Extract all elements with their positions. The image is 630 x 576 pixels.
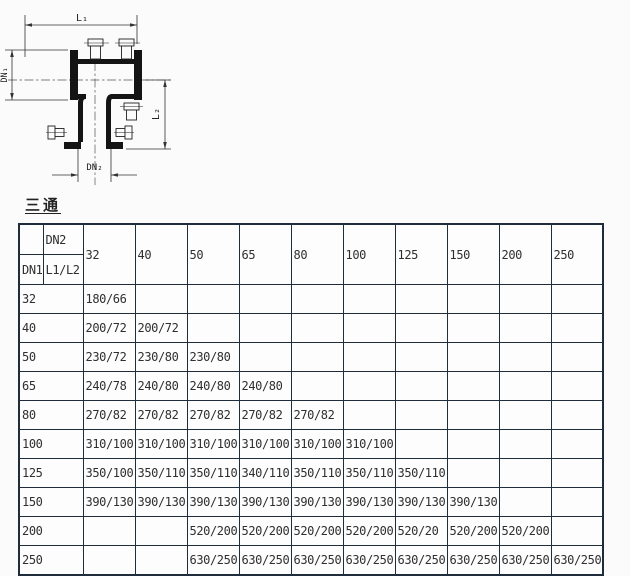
corner-empty-cell bbox=[19, 224, 43, 255]
row-header-dn1: 250 bbox=[19, 546, 83, 576]
table-cell bbox=[239, 314, 291, 343]
table-cell: 390/130 bbox=[83, 488, 135, 517]
row-header-dn1: 150 bbox=[19, 488, 83, 517]
dimension-label-dn1: DN₁ bbox=[0, 67, 10, 82]
column-header-dn2-200: 200 bbox=[499, 224, 551, 285]
table-cell bbox=[343, 314, 395, 343]
l2-arrow-bottom bbox=[163, 142, 167, 149]
right-flange bbox=[134, 50, 142, 100]
table-cell bbox=[291, 372, 343, 401]
table-cell bbox=[499, 285, 551, 314]
branch-right-wall bbox=[109, 97, 113, 143]
table-row-dn1-125: 125350/100350/110350/110340/110350/11035… bbox=[19, 459, 603, 488]
table-cell bbox=[343, 285, 395, 314]
table-cell bbox=[447, 430, 499, 459]
column-header-dn2-40: 40 bbox=[135, 224, 187, 285]
table-cell: 520/200 bbox=[447, 517, 499, 546]
table-cell: 630/250 bbox=[551, 546, 603, 576]
dn2-arrow-left bbox=[71, 173, 78, 177]
table-cell bbox=[135, 517, 187, 546]
table-row-dn1-32: 32180/66 bbox=[19, 285, 603, 314]
table-cell bbox=[395, 430, 447, 459]
table-cell: 350/110 bbox=[291, 459, 343, 488]
table-cell: 200/72 bbox=[135, 314, 187, 343]
table-cell bbox=[551, 401, 603, 430]
branch-left-wall bbox=[81, 97, 87, 143]
bolt-top-left bbox=[84, 39, 109, 59]
table-cell bbox=[447, 459, 499, 488]
table-cell: 630/250 bbox=[447, 546, 499, 576]
table-cell bbox=[343, 372, 395, 401]
table-cell: 270/82 bbox=[239, 401, 291, 430]
dn2-arrow-right bbox=[111, 173, 118, 177]
dimension-dn1 bbox=[5, 50, 68, 100]
table-cell bbox=[135, 546, 187, 576]
bottom-flange-right bbox=[106, 142, 123, 149]
bolt-bottom-left bbox=[46, 126, 67, 139]
table-cell bbox=[343, 401, 395, 430]
table-row-dn1-100: 100310/100310/100310/100310/100310/10031… bbox=[19, 430, 603, 459]
table-cell bbox=[551, 459, 603, 488]
table-cell bbox=[447, 401, 499, 430]
bottom-flange-left bbox=[64, 142, 81, 149]
column-header-dn2-125: 125 bbox=[395, 224, 447, 285]
table-cell: 310/100 bbox=[291, 430, 343, 459]
table-cell bbox=[551, 372, 603, 401]
table-cell: 310/100 bbox=[187, 430, 239, 459]
table-cell: 350/110 bbox=[135, 459, 187, 488]
column-header-dn2-100: 100 bbox=[343, 224, 395, 285]
table-cell bbox=[135, 285, 187, 314]
header-row-top: DN2 3240506580100125150200250 bbox=[19, 224, 603, 255]
table-cell: 630/250 bbox=[343, 546, 395, 576]
table-cell bbox=[499, 314, 551, 343]
table-cell bbox=[551, 285, 603, 314]
table-cell bbox=[239, 285, 291, 314]
table-cell: 520/200 bbox=[187, 517, 239, 546]
pipe-top-wall bbox=[78, 59, 134, 64]
table-cell: 340/110 bbox=[239, 459, 291, 488]
table-row-dn1-250: 250630/250630/250630/250630/250630/25063… bbox=[19, 546, 603, 576]
table-cell: 630/250 bbox=[499, 546, 551, 576]
corner-dn2-label: DN2 bbox=[43, 224, 83, 255]
table-cell bbox=[499, 430, 551, 459]
column-header-dn2-150: 150 bbox=[447, 224, 499, 285]
table-cell bbox=[187, 285, 239, 314]
row-header-dn1: 100 bbox=[19, 430, 83, 459]
table-row-dn1-65: 65240/78240/80240/80240/80 bbox=[19, 372, 603, 401]
table-cell bbox=[291, 285, 343, 314]
table-cell bbox=[395, 401, 447, 430]
table-cell: 350/100 bbox=[83, 459, 135, 488]
table-cell bbox=[83, 546, 135, 576]
table-cell: 350/110 bbox=[187, 459, 239, 488]
table-cell bbox=[551, 488, 603, 517]
table-cell: 350/110 bbox=[343, 459, 395, 488]
table-cell bbox=[187, 314, 239, 343]
table-cell bbox=[551, 517, 603, 546]
table-cell: 310/100 bbox=[239, 430, 291, 459]
table-cell: 240/78 bbox=[83, 372, 135, 401]
table-cell bbox=[499, 459, 551, 488]
table-cell bbox=[499, 372, 551, 401]
column-header-dn2-250: 250 bbox=[551, 224, 603, 285]
pipe-bottom-wall-right bbox=[111, 94, 134, 99]
row-header-dn1: 200 bbox=[19, 517, 83, 546]
row-header-dn1: 40 bbox=[19, 314, 83, 343]
dn1-arrow-bottom bbox=[10, 93, 14, 100]
table-row-dn1-150: 150390/130390/130390/130390/130390/13039… bbox=[19, 488, 603, 517]
row-header-dn1: 65 bbox=[19, 372, 83, 401]
table-cell: 180/66 bbox=[83, 285, 135, 314]
table-cell: 270/82 bbox=[83, 401, 135, 430]
l1-arrow-left bbox=[25, 23, 32, 27]
dimension-label-l1: L₁ bbox=[76, 13, 88, 24]
corner-dn1-label: DN1 bbox=[19, 255, 43, 285]
table-cell: 240/80 bbox=[135, 372, 187, 401]
table-cell: 200/72 bbox=[83, 314, 135, 343]
row-header-dn1: 50 bbox=[19, 343, 83, 372]
table-cell bbox=[343, 343, 395, 372]
table-cell: 390/130 bbox=[291, 488, 343, 517]
table-cell: 230/80 bbox=[135, 343, 187, 372]
table-cell bbox=[395, 285, 447, 314]
table-cell: 390/130 bbox=[187, 488, 239, 517]
table-cell: 390/130 bbox=[395, 488, 447, 517]
row-header-dn1: 80 bbox=[19, 401, 83, 430]
table-cell: 520/200 bbox=[343, 517, 395, 546]
table-cell bbox=[447, 343, 499, 372]
table-cell: 630/250 bbox=[291, 546, 343, 576]
bolt-bottom-right bbox=[114, 126, 134, 139]
column-header-dn2-65: 65 bbox=[239, 224, 291, 285]
row-header-dn1: 32 bbox=[19, 285, 83, 314]
l1-arrow-right bbox=[130, 23, 137, 27]
dimensions-table: DN2 3240506580100125150200250 DN1 L1/L2 … bbox=[18, 223, 604, 576]
table-row-dn1-50: 50230/72230/80230/80 bbox=[19, 343, 603, 372]
table-cell bbox=[551, 430, 603, 459]
table-cell: 230/72 bbox=[83, 343, 135, 372]
l2-arrow-top bbox=[163, 80, 167, 87]
table-cell: 240/80 bbox=[187, 372, 239, 401]
table-cell: 350/110 bbox=[395, 459, 447, 488]
table-cell: 520/20 bbox=[395, 517, 447, 546]
table-cell: 310/100 bbox=[135, 430, 187, 459]
table-cell: 630/250 bbox=[187, 546, 239, 576]
table-cell: 310/100 bbox=[343, 430, 395, 459]
table-cell: 310/100 bbox=[83, 430, 135, 459]
row-header-dn1: 125 bbox=[19, 459, 83, 488]
bolt-under-right-flange bbox=[120, 103, 143, 120]
table-cell: 390/130 bbox=[447, 488, 499, 517]
table-cell: 270/82 bbox=[291, 401, 343, 430]
table-cell bbox=[551, 343, 603, 372]
dn1-arrow-top bbox=[10, 50, 14, 57]
table-cell: 520/200 bbox=[499, 517, 551, 546]
table-cell bbox=[239, 343, 291, 372]
table-cell bbox=[395, 343, 447, 372]
table-cell: 270/82 bbox=[187, 401, 239, 430]
column-header-dn2-50: 50 bbox=[187, 224, 239, 285]
table-row-dn1-200: 200520/200520/200520/200520/200520/20520… bbox=[19, 517, 603, 546]
dimension-label-l2: L₂ bbox=[151, 108, 162, 120]
table-cell bbox=[499, 343, 551, 372]
table-cell bbox=[83, 517, 135, 546]
table-cell bbox=[291, 314, 343, 343]
table-cell bbox=[447, 314, 499, 343]
table-cell bbox=[499, 401, 551, 430]
table-cell: 630/250 bbox=[239, 546, 291, 576]
column-header-dn2-80: 80 bbox=[291, 224, 343, 285]
table-cell bbox=[395, 372, 447, 401]
dimension-label-dn2: DN₂ bbox=[86, 163, 102, 173]
column-header-dn2-32: 32 bbox=[83, 224, 135, 285]
catalog-page: L₁ DN₁ L₂ DN₂ 三通 bbox=[0, 0, 630, 572]
corner-l1l2-label: L1/L2 bbox=[43, 255, 83, 285]
table-row-dn1-80: 80270/82270/82270/82270/82270/82 bbox=[19, 401, 603, 430]
left-flange bbox=[70, 50, 78, 100]
table-cell bbox=[395, 314, 447, 343]
table-cell bbox=[499, 488, 551, 517]
table-cell: 520/200 bbox=[239, 517, 291, 546]
table-cell: 270/82 bbox=[135, 401, 187, 430]
table-cell: 240/80 bbox=[239, 372, 291, 401]
table-cell bbox=[447, 285, 499, 314]
table-cell: 630/250 bbox=[395, 546, 447, 576]
table-cell: 520/200 bbox=[291, 517, 343, 546]
table-cell bbox=[551, 314, 603, 343]
table-cell: 390/130 bbox=[239, 488, 291, 517]
table-row-dn1-40: 40200/72200/72 bbox=[19, 314, 603, 343]
table-cell bbox=[291, 343, 343, 372]
table-cell: 230/80 bbox=[187, 343, 239, 372]
table-cell bbox=[447, 372, 499, 401]
section-title: 三通 bbox=[25, 194, 61, 215]
table-cell: 390/130 bbox=[343, 488, 395, 517]
table-cell: 390/130 bbox=[135, 488, 187, 517]
tee-fitting-drawing: L₁ DN₁ L₂ DN₂ bbox=[0, 2, 195, 197]
